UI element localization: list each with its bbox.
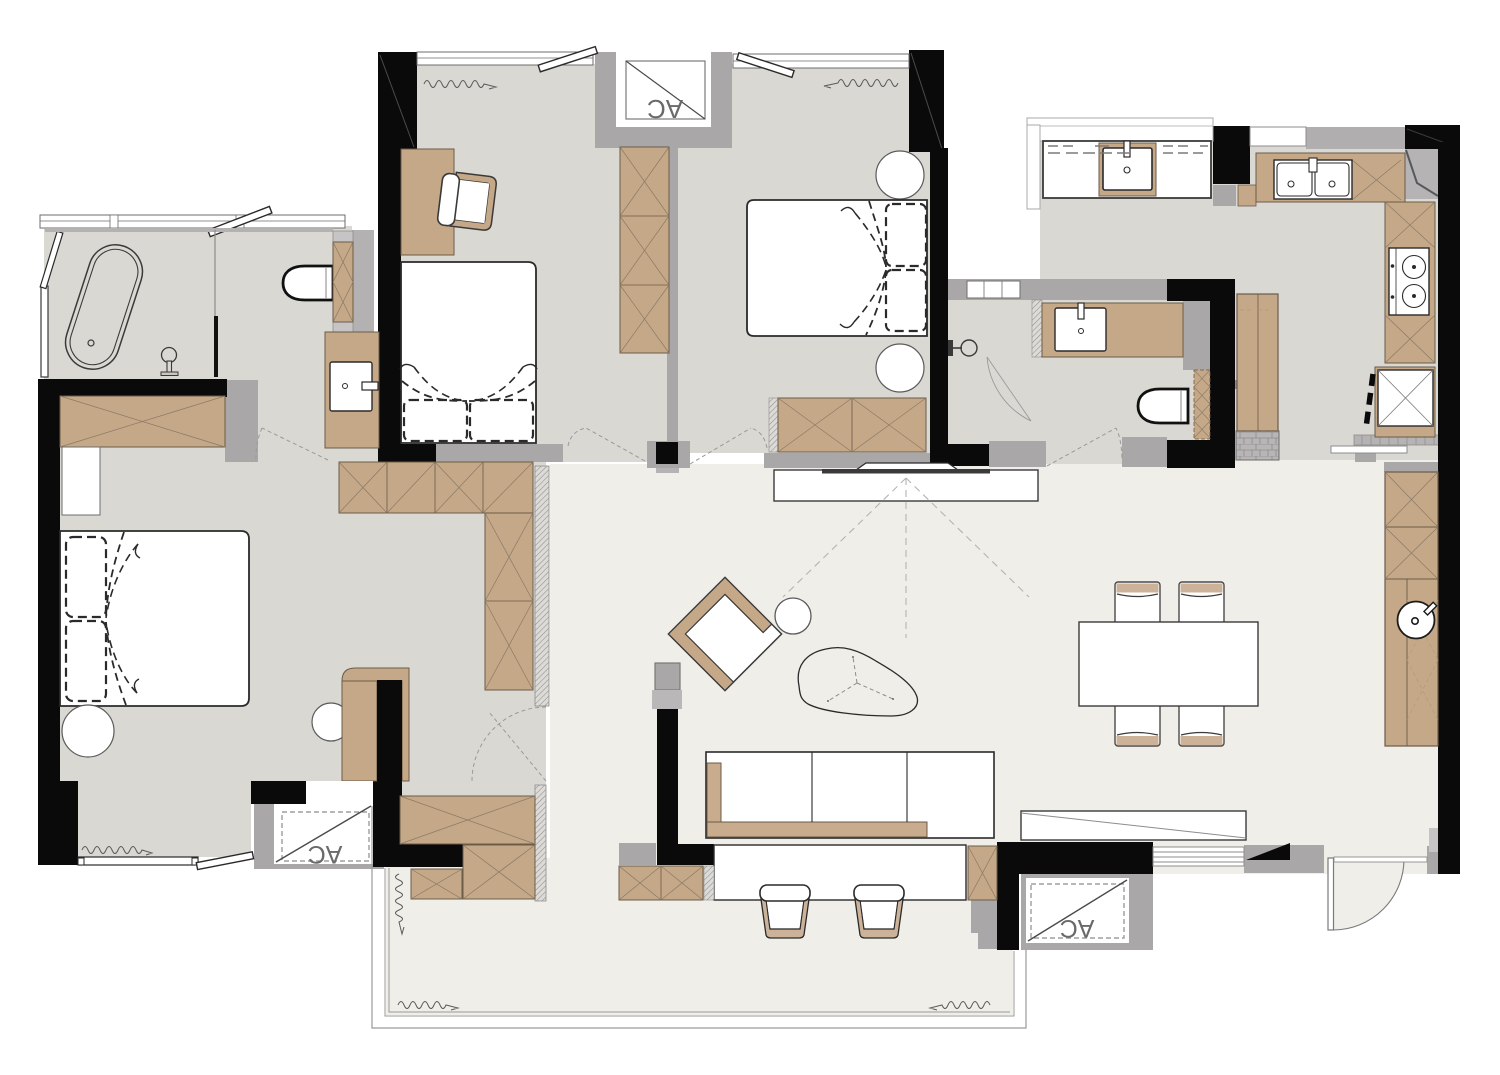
svg-text:AC: AC: [647, 94, 683, 124]
svg-text:AC: AC: [1060, 914, 1095, 942]
svg-text:AC: AC: [308, 840, 343, 868]
